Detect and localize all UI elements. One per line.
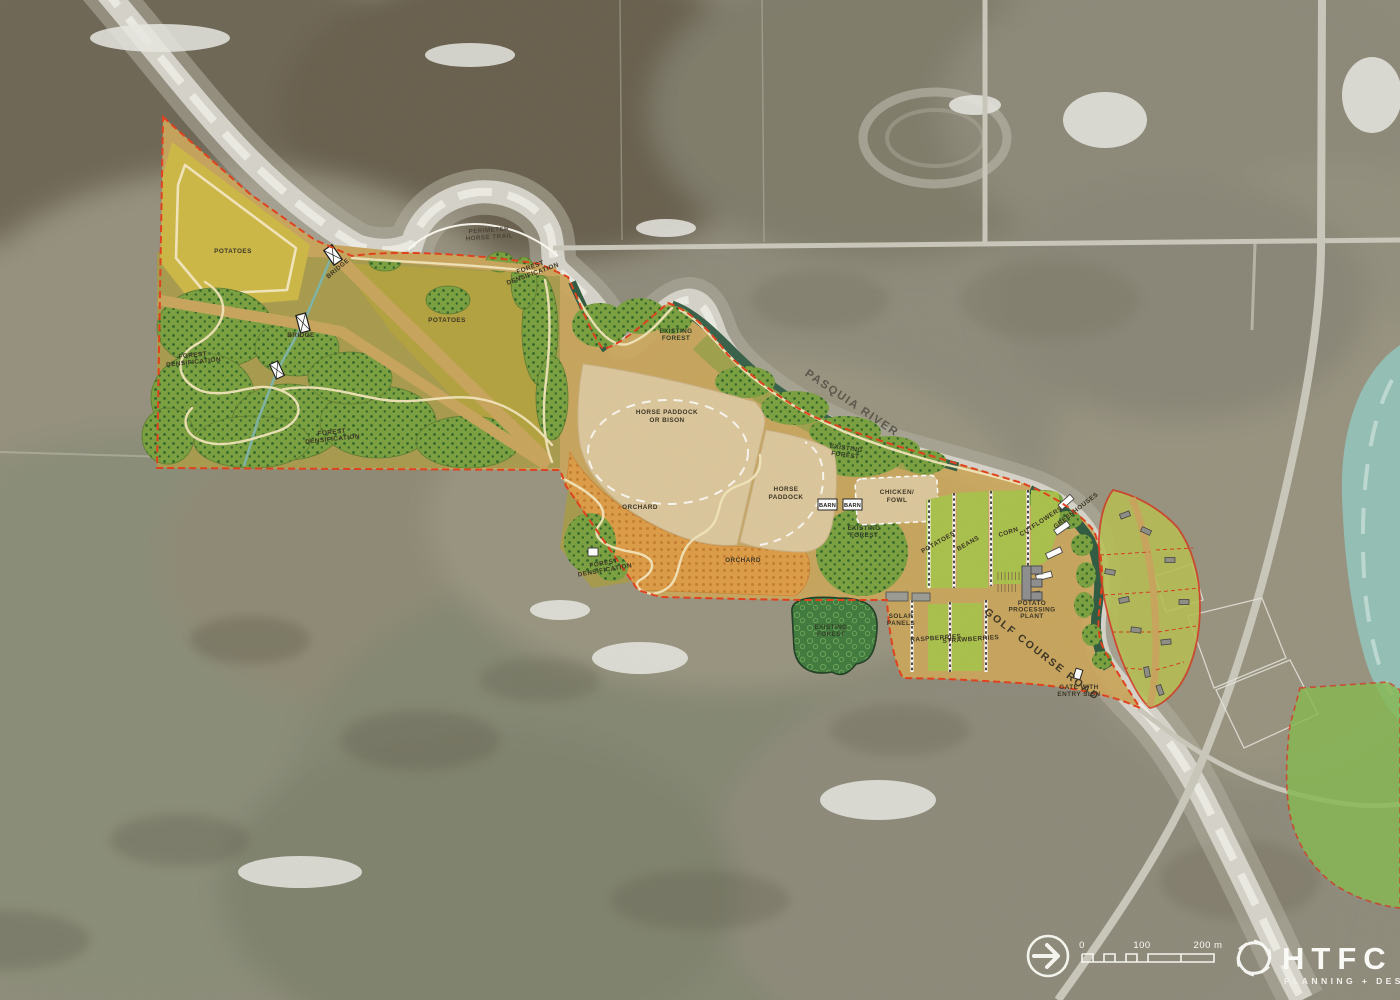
site-plan-map: POTATOES BRIDGE BRIDGE FORESTDENSIFICATI… (0, 0, 1400, 1000)
photo-grain-overlay (0, 0, 1400, 1000)
